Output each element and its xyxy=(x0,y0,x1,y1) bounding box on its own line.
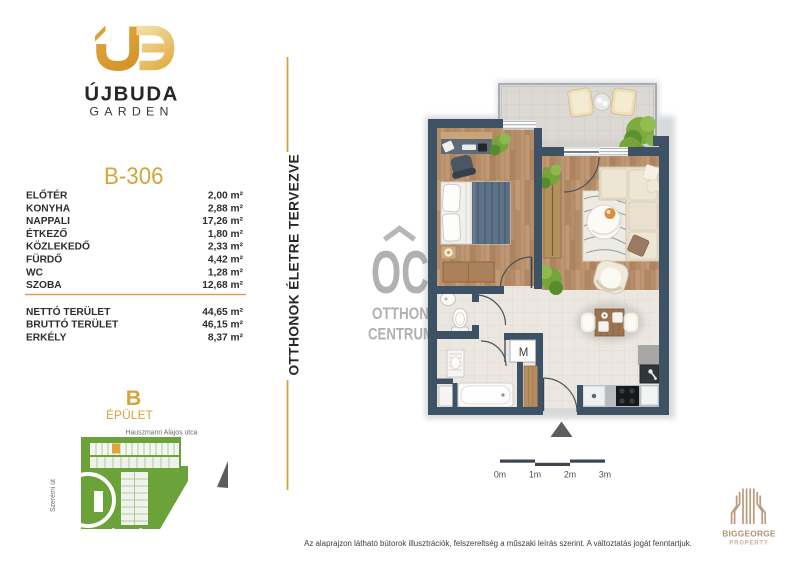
svg-text:B: B xyxy=(126,386,142,410)
svg-text:NAPPALI: NAPPALI xyxy=(26,216,70,227)
svg-text:2m: 2m xyxy=(564,470,576,480)
svg-text:OTTHON: OTTHON xyxy=(372,304,429,323)
svg-text:KÖZLEKEDŐ: KÖZLEKEDŐ xyxy=(26,240,90,253)
svg-text:1,80 m²: 1,80 m² xyxy=(208,229,244,240)
svg-text:BRUTTÓ TERÜLET: BRUTTÓ TERÜLET xyxy=(26,318,119,331)
svg-text:B-306: B-306 xyxy=(104,163,164,190)
svg-text:ERKÉLY: ERKÉLY xyxy=(26,330,67,343)
svg-text:3m: 3m xyxy=(599,470,611,480)
svg-text:0m: 0m xyxy=(494,470,506,480)
svg-text:ÚJBUDA: ÚJBUDA xyxy=(84,81,179,105)
svg-text:Szerémi út: Szerémi út xyxy=(50,479,57,512)
svg-text:PROPERTY: PROPERTY xyxy=(729,541,768,547)
svg-text:12,68 m²: 12,68 m² xyxy=(202,280,243,291)
svg-text:FÜRDŐ: FÜRDŐ xyxy=(26,253,62,266)
svg-text:WC: WC xyxy=(26,267,44,278)
svg-text:2,88 m²: 2,88 m² xyxy=(208,203,244,214)
svg-text:CENTRUM: CENTRUM xyxy=(368,325,434,344)
svg-text:46,15 m²: 46,15 m² xyxy=(202,320,243,331)
svg-text:17,26 m²: 17,26 m² xyxy=(202,216,243,227)
svg-text:M: M xyxy=(519,347,529,359)
svg-text:Hauszmann Alajos utca: Hauszmann Alajos utca xyxy=(125,430,197,437)
svg-text:OC: OC xyxy=(371,239,429,306)
svg-text:OTTHONOK ÉLETRE TERVEZVE: OTTHONOK ÉLETRE TERVEZVE xyxy=(287,154,302,376)
svg-text:BIGGEORGE: BIGGEORGE xyxy=(722,529,776,539)
svg-text:2,33 m²: 2,33 m² xyxy=(208,242,244,253)
svg-text:ELŐTÉR: ELŐTÉR xyxy=(26,189,68,202)
svg-text:2,00 m²: 2,00 m² xyxy=(208,191,244,202)
svg-text:1,28 m²: 1,28 m² xyxy=(208,267,244,278)
svg-text:8,37 m²: 8,37 m² xyxy=(208,332,244,343)
svg-text:1m: 1m xyxy=(529,470,541,480)
svg-text:KONYHA: KONYHA xyxy=(26,203,71,214)
svg-text:ÉTKEZŐ: ÉTKEZŐ xyxy=(26,227,67,240)
svg-text:Az alaprajzon látható bútorok: Az alaprajzon látható bútorok illusztrác… xyxy=(304,539,692,548)
svg-text:4,42 m²: 4,42 m² xyxy=(208,255,244,266)
svg-text:ÉPÜLET: ÉPÜLET xyxy=(106,408,153,422)
svg-text:GARDEN: GARDEN xyxy=(89,104,173,118)
svg-text:44,65 m²: 44,65 m² xyxy=(202,307,243,318)
svg-text:NETTÓ TERÜLET: NETTÓ TERÜLET xyxy=(26,305,111,318)
svg-text:SZOBA: SZOBA xyxy=(26,280,62,291)
